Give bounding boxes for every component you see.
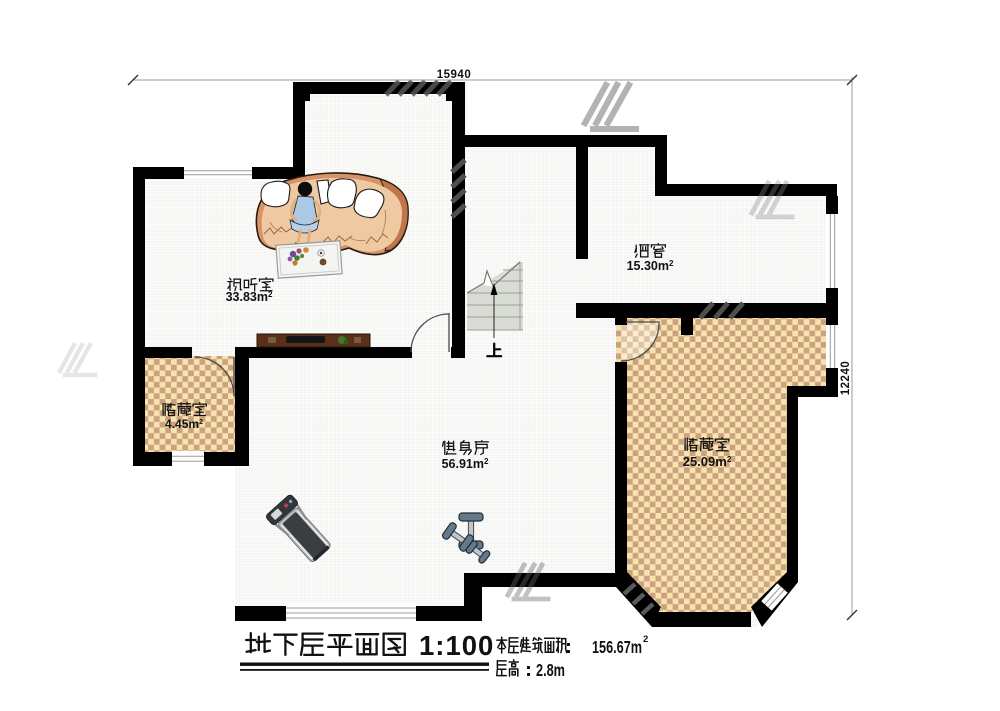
svg-text:4.45m2: 4.45m2 <box>165 417 203 431</box>
svg-text:156.67m: 156.67m <box>592 637 642 657</box>
svg-text:1:100: 1:100 <box>419 630 494 661</box>
svg-text:25.09m2: 25.09m2 <box>683 454 732 469</box>
svg-text:15.30m2: 15.30m2 <box>627 259 674 273</box>
svg-text:33.83m2: 33.83m2 <box>226 290 273 304</box>
svg-text:56.91m2: 56.91m2 <box>442 457 489 471</box>
svg-text:15940: 15940 <box>437 69 471 81</box>
svg-text:2: 2 <box>643 634 648 645</box>
svg-text:12240: 12240 <box>840 361 852 395</box>
svg-text:2.8m: 2.8m <box>536 660 565 680</box>
